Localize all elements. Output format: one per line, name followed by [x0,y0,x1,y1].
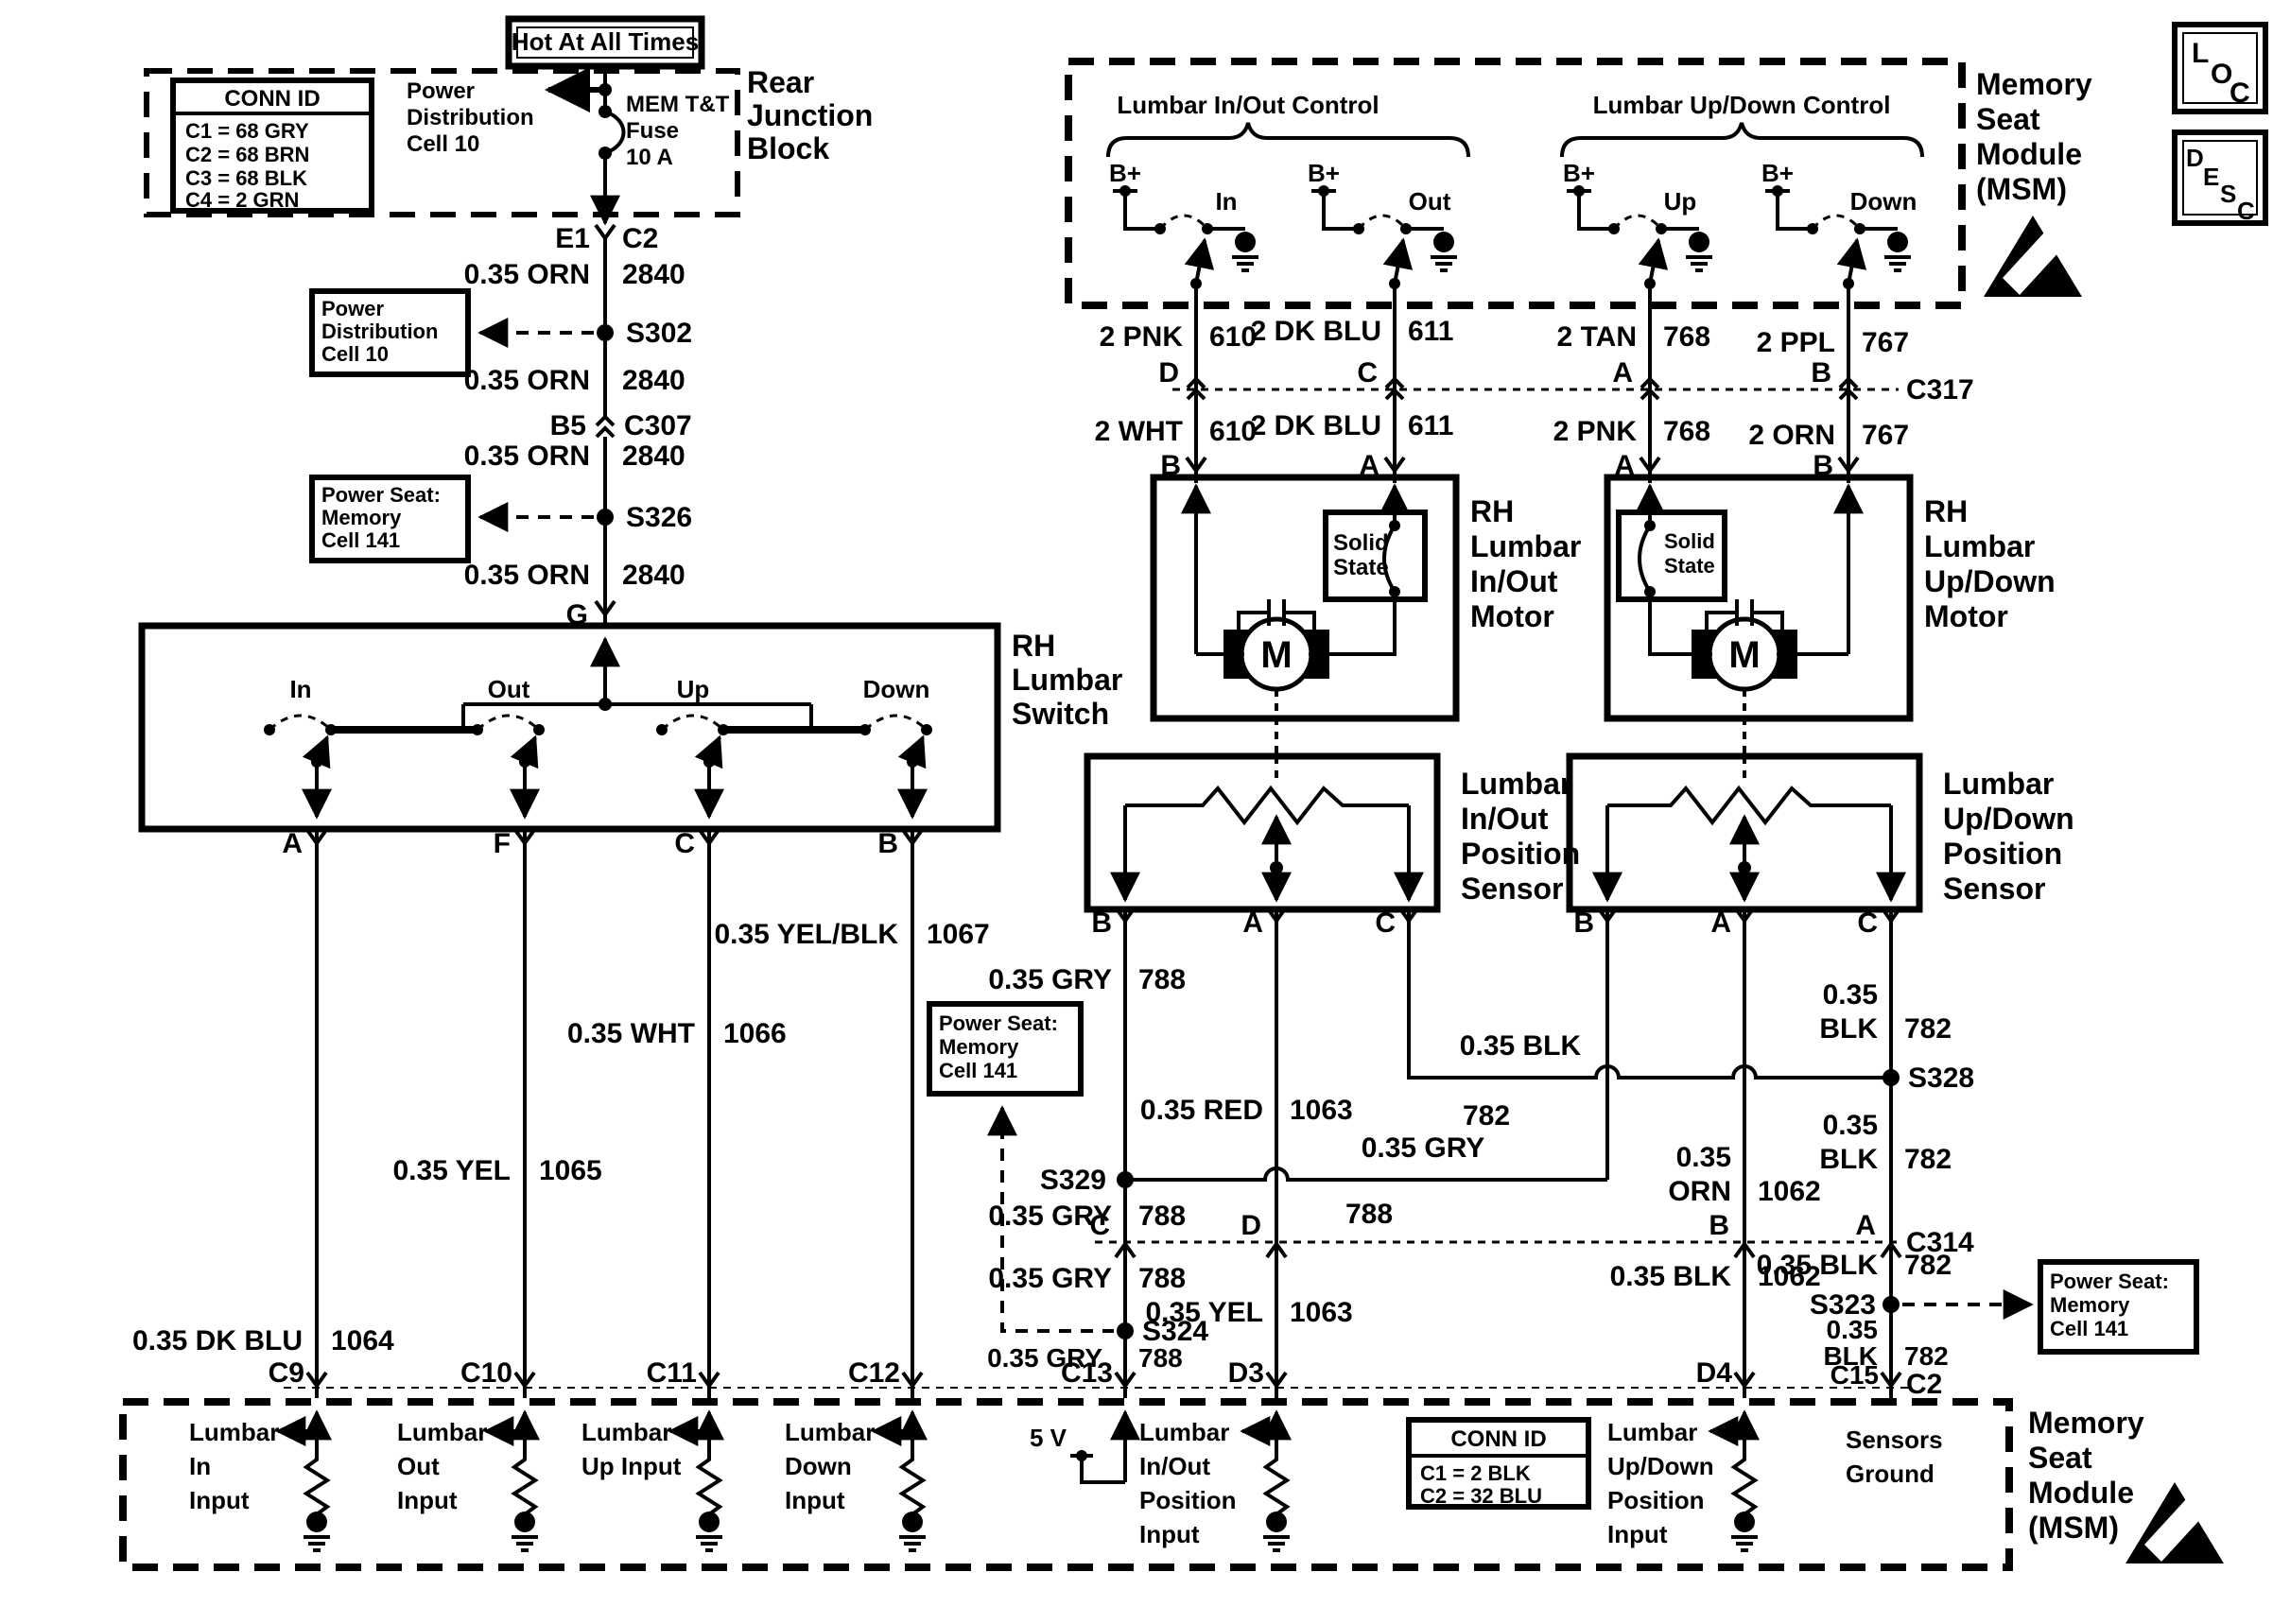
wire-circuit: 767 [1862,420,1909,451]
wire-label: 2 TAN [1557,321,1637,353]
conn-id-row: C4 = 2 GRN [185,188,299,212]
input-label-line: Ground [1846,1460,1935,1488]
motor-title-line: RH [1924,494,1968,528]
switch-position-label: In [289,675,311,703]
msm-title-line: Module [1976,137,2082,171]
wire-circuit: 767 [1862,327,1909,358]
lumbar-inout-position-sensor: Lumbar In/Out Position Sensor B A C [1087,756,1580,939]
wire-label: 0.35 ORN [464,259,590,290]
sensor-title-line: Position [1461,837,1580,871]
control-position-label: Out [1409,187,1451,216]
five-v-label: 5 V [1030,1424,1067,1452]
input-label-line: Lumbar [397,1418,487,1446]
msm-title-line: Module [2028,1476,2134,1510]
input-label-line: Input [785,1486,845,1514]
hot-label: Hot At All Times [512,27,699,56]
wire-label: 0.35 WHT [567,1018,695,1049]
group-label: Lumbar In/Out Control [1117,91,1379,119]
switch-pin-label: A [282,828,303,859]
msm-title-line: Seat [2028,1441,2092,1475]
wire-label: 0.35 YEL [392,1155,511,1186]
mem-tt-fuse: MEM T&T Fuse 10 A [599,92,730,170]
connector-label: C2 [622,223,658,254]
brace [1108,123,1468,157]
splice-s326: S326 Power Seat: Memory Cell 141 [312,477,692,561]
conn-id-row: C1 = 2 BLK [1420,1461,1531,1485]
sensor-pin-label: A [1242,907,1263,939]
switch-title-line: Lumbar [1012,663,1122,697]
splice-label: S328 [1908,1063,1974,1094]
fuse-line: Fuse [626,118,679,144]
wire-label: 2 DK BLU [1251,316,1381,347]
pin-label: C [1357,357,1378,389]
pd-ref-line: Distribution [407,105,534,130]
switch-pole-up[interactable]: Up [656,675,729,817]
lumbar-up-input: Lumbar Up Input [581,1412,722,1550]
sensor-pin-label: C [1857,907,1878,939]
memory-seat-module-top: Memory Seat Module (MSM) Lumbar In/Out C… [1068,61,2092,305]
sensor-title-line: Up/Down [1943,802,2074,836]
conn-id-header: CONN ID [1450,1426,1546,1452]
switch-pin-label: B [877,828,898,859]
sensor-pin-label: B [1091,907,1112,939]
switch-pole-down[interactable]: Down [859,675,932,817]
wire-label: 2 PPL [1757,327,1835,358]
lumbar-updown-position-sensor: Lumbar Up/Down Position Sensor B A C [1570,756,2074,939]
pd-ref-line: Power [407,78,475,104]
switch-pin-label: C [674,828,695,859]
input-label-line: Lumbar [785,1418,875,1446]
wire-label: 0.35 GRY [1362,1132,1485,1164]
ps-box-line: Memory [321,506,402,529]
b-plus-label: B+ [1761,159,1794,187]
control-position-label: In [1215,187,1237,216]
desc-letter: C [2237,197,2255,225]
wire-circuit: 788 [1138,1201,1186,1232]
pin-label: C13 [1061,1357,1113,1389]
solid-state-line: State [1333,555,1389,580]
pin-label: D4 [1696,1357,1733,1389]
pin-label: A [1612,357,1633,389]
desc-letter: D [2186,144,2204,172]
control-switch-up: B+ Up [1563,159,1712,289]
motor-feed-wires: 2 PNK 610 2 DK BLU 611 2 TAN 768 2 PPL 7… [1095,284,1974,483]
pin-label: D [1241,1210,1261,1241]
motor-title-line: RH [1470,494,1514,528]
wire-label: 0.35 [1823,979,1878,1011]
input-label-line: Lumbar [189,1418,279,1446]
conn-id-row: C2 = 68 BRN [185,143,309,166]
input-label-line: Position [1139,1486,1237,1514]
switch-position-label: Out [488,675,530,703]
msm-connector-row: C9 C10 C11 C12 C13 D3 D4 C15 C2 [269,1357,1943,1400]
loc-letter: C [2230,78,2250,109]
wire-circuit: 782 [1904,1013,1952,1045]
pd-box-line: Distribution [321,320,438,343]
motor-m: M [1260,634,1292,676]
solid-state-switch: Solid State [1619,486,1725,599]
wire-label: 0.35 [1823,1110,1878,1141]
wire-label: 0.35 ORN [464,365,590,396]
switch-title-line: Switch [1012,697,1109,731]
pin-label: B5 [550,410,586,441]
b-plus-label: B+ [1563,159,1595,187]
wire-circuit: 1062 [1758,1176,1821,1207]
rear-junction-block: Rear Junction Block CONN ID C1 = 68 GRY … [147,65,873,215]
pd-ref-line: Cell 10 [407,131,479,157]
sensor-title-line: In/Out [1461,802,1549,836]
motor-symbol: M [1692,599,1797,689]
sensors-ground-label: Sensors Ground [1846,1425,1943,1488]
pd-box-line: Power [321,297,384,320]
hot-at-all-times-callout: Hot At All Times [509,19,702,66]
wire-label: 2 WHT [1095,416,1183,447]
memory-seat-module-bottom: Memory Seat Module (MSM) Lumbar In Input… [123,1402,2224,1567]
pin-label: C [1089,1210,1110,1241]
wire-circuit: 788 [1345,1199,1393,1230]
pin-label: C11 [647,1357,697,1389]
wire-circuit: 1066 [723,1018,787,1049]
wire-circuit: 611 [1408,316,1453,347]
wire-circuit: 2840 [622,441,685,472]
wire-circuit: 610 [1209,416,1257,447]
wire-label: 0.35 BLK [1460,1030,1582,1062]
motor-title-line: In/Out [1470,564,1558,598]
esd-warning-icon [1984,216,2082,297]
wire-circuit: 1063 [1290,1297,1353,1328]
control-position-label: Down [1850,187,1917,216]
motor-title-line: Motor [1470,599,1554,633]
wire-label: 0.35 GRY [988,964,1112,995]
pin-label: C15 [1831,1360,1879,1390]
rh-lumbar-inout-motor: RH Lumbar In/Out Motor Solid State M [1154,477,1581,756]
splice-s329: S329 [1040,1165,1134,1196]
conn-id-table-rjb: CONN ID C1 = 68 GRY C2 = 68 BRN C3 = 68 … [173,80,372,212]
wire-circuit: 782 [1463,1100,1510,1132]
rh-lumbar-switch: RH Lumbar Switch In Out Up Dow [142,626,1122,859]
wire-label: 2 ORN [1748,420,1835,451]
input-label-line: Lumbar [581,1418,671,1446]
control-position-label: Up [1664,187,1697,216]
motor-title-line: Motor [1924,599,2008,633]
ps-box-line: Memory [939,1035,1019,1059]
ps-box-line: Power Seat: [2050,1270,2169,1293]
fuse-line: 10 A [626,145,673,170]
sensor-pin-label: B [1573,907,1594,939]
msm-title-line: (MSM) [1976,172,2067,206]
conn-id-table-msm: CONN ID C1 = 2 BLK C2 = 32 BLU [1409,1420,1588,1508]
sensor-pin-label: A [1710,907,1731,939]
lumbar-inout-position-input: Lumbar In/Out Position Input [1139,1412,1290,1550]
wire-circuit: 788 [1138,1263,1186,1294]
input-label-line: Input [189,1486,250,1514]
wire-label: 0.35 [1676,1142,1731,1173]
solid-state-line: Solid [1333,530,1389,556]
wiring-diagram-page: L O C D E S C Hot At All Times Rear Junc… [0,0,2273,1624]
b-plus-label: B+ [1308,159,1340,187]
input-label-line: Input [397,1486,458,1514]
msm-title-line: Memory [1976,67,2092,101]
motor-title-line: Lumbar [1924,529,2035,563]
wire-circuit: 782 [1904,1341,1949,1371]
control-switch-out: B+ Out [1308,159,1457,289]
pin-label: C10 [460,1357,512,1389]
conn-id-row: C3 = 68 BLK [185,166,307,190]
wire-label: 0.35 ORN [464,441,590,472]
wire-circuit: 2840 [622,560,685,591]
switch-title-line: RH [1012,629,1055,663]
solid-state-line: Solid [1664,529,1715,553]
ps-box-line: Cell 141 [321,528,400,552]
input-label-line: Input [1139,1520,1200,1548]
desc-letter: E [2203,163,2219,191]
switch-pole-out[interactable]: Out [472,675,545,817]
pin-label: E1 [555,223,590,254]
fuse-line: MEM T&T [626,92,730,117]
splice-label: S329 [1040,1165,1106,1196]
desc-button[interactable]: D E S C [2175,132,2265,225]
wire-label: BLK [1819,1013,1878,1045]
solid-state-line: State [1664,554,1715,578]
wire-circuit: 1063 [1290,1095,1353,1126]
msm-title-line: (MSM) [2028,1511,2119,1545]
desc-letter: S [2220,180,2236,208]
wire-label: 2 DK BLU [1251,410,1381,441]
lumbar-out-input: Lumbar Out Input [397,1412,538,1550]
input-label-line: Out [397,1452,440,1480]
loc-letter: L [2192,38,2209,69]
wire-circuit: 782 [1904,1144,1952,1175]
input-label-line: Up/Down [1607,1452,1714,1480]
group-label: Lumbar Up/Down Control [1593,91,1891,119]
sensor-title-line: Sensor [1461,872,1563,906]
splice-label: S302 [626,318,692,349]
lumbar-updown-position-input: Lumbar Up/Down Position Input [1607,1412,1758,1550]
brace [1562,123,1922,157]
wire-label: 0.35 RED [1140,1095,1263,1126]
rjb-title-line: Block [747,131,829,165]
wire-circuit: 1067 [927,919,990,950]
motor-m: M [1728,634,1760,676]
input-label-line: In [189,1452,211,1480]
connector-label: C307 [624,410,692,441]
b-plus-label: B+ [1109,159,1141,187]
wire-label: 2 PNK [1100,321,1184,353]
wire-circuit: 1065 [539,1155,602,1186]
motor-title-line: Lumbar [1470,529,1581,563]
connector-label: C317 [1906,374,1974,406]
input-label-line: Sensors [1846,1425,1943,1454]
power-distribution-ref: Power Distribution Cell 10 [407,78,612,157]
power-seat-memory-callout-right: Power Seat: Memory Cell 141 [2040,1262,2196,1352]
wire-circuit: 611 [1408,410,1453,441]
pin-label: D [1158,357,1179,389]
conn-id-row: C1 = 68 GRY [185,119,309,143]
switch-pole-in[interactable]: In [264,675,337,817]
wire-label: 0.35 BLK [1610,1261,1732,1292]
sensor-pin-label: C [1375,907,1396,939]
pin-label: B [1709,1210,1729,1241]
wire-circuit: 788 [1138,964,1186,995]
rjb-title-line: Rear [747,65,814,99]
control-switch-down: B+ Down [1761,159,1917,289]
conn-id-row: C2 = 32 BLU [1420,1484,1542,1508]
wire-circuit: 768 [1663,321,1710,353]
pd-box-line: Cell 10 [321,342,389,366]
wire-label: BLK [1819,1144,1878,1175]
sensor-title-line: Sensor [1943,872,2045,906]
wire-circuit: 2840 [622,259,685,290]
input-label-line: Lumbar [1607,1418,1697,1446]
switch-position-label: Up [677,675,710,703]
wire-label: 0.35 YEL/BLK [714,919,898,950]
sensor-title-line: Lumbar [1461,767,1571,801]
motor-title-line: Up/Down [1924,564,2056,598]
input-label-line: In/Out [1139,1452,1210,1480]
wire-label: 0.35 BLK [1757,1250,1879,1281]
sensor-title-line: Lumbar [1943,767,2054,801]
input-label-line: Position [1607,1486,1705,1514]
input-label-line: Input [1607,1520,1668,1548]
splice-label: S326 [626,502,692,533]
wire-circuit: 788 [1138,1343,1183,1373]
solid-state-switch: Solid State [1326,486,1425,599]
wire-label: 2 PNK [1553,416,1638,447]
rjb-title-line: Junction [747,98,873,132]
msm-title-line: Memory [2028,1406,2144,1440]
wire-label: ORN [1668,1176,1731,1207]
sensor-title-line: Position [1943,837,2062,871]
five-volt-supply: 5 V [1030,1412,1125,1482]
esd-warning-icon [2126,1482,2224,1564]
wire-label: 0.35 DK BLU [132,1325,303,1356]
pin-label: C9 [269,1357,304,1389]
pin-label: A [1855,1210,1876,1241]
input-label-line: Up Input [581,1452,682,1480]
wire-circuit: 1064 [331,1325,394,1356]
control-switch-in: B+ In [1109,159,1258,289]
switch-output-wires: 0.35 YEL/BLK 1067 0.35 WHT 1066 0.35 YEL… [132,829,990,1388]
ps-box-line: Cell 141 [2050,1317,2128,1340]
ps-box-line: Power Seat: [939,1011,1058,1035]
wire-label: 0.35 ORN [464,560,590,591]
ps-box-line: Cell 141 [939,1059,1017,1082]
msm-title-line: Seat [1976,102,2040,136]
switch-internal-wiring [331,639,865,730]
switch-pin-label: F [494,828,511,859]
motor-symbol: M [1223,599,1329,689]
wire-circuit: 610 [1209,321,1257,353]
c317-connector: D C A B C317 [1158,357,1973,406]
wire-circuit: 782 [1904,1250,1952,1281]
input-label-line: Down [785,1452,852,1480]
pin-label: B [1811,357,1831,389]
conn-id-header: CONN ID [224,86,320,112]
input-label-line: Lumbar [1139,1418,1229,1446]
wire-circuit: 768 [1663,416,1710,447]
splice-s302: S302 Power Distribution Cell 10 [312,291,692,374]
ps-box-line: Power Seat: [321,483,441,507]
wire-label: 0.35 [1827,1315,1879,1344]
rh-lumbar-updown-motor: RH Lumbar Up/Down Motor Solid State M [1607,477,2056,756]
wire-circuit: 2840 [622,365,685,396]
pin-label: D3 [1228,1357,1264,1389]
splice-s328: S328 [1883,1063,1974,1094]
loc-button[interactable]: L O C [2175,25,2265,112]
pin-label: C12 [848,1357,900,1389]
lumbar-down-input: Lumbar Down Input [785,1412,926,1550]
lumbar-in-input: Lumbar In Input [189,1412,330,1550]
ps-box-line: Memory [2050,1293,2130,1317]
wire-label: 0.35 GRY [988,1263,1112,1294]
switch-position-label: Down [863,675,930,703]
sensor-harness-wiring: 0.35 GRY 788 0.35 RED 1063 0.35 BLK 782 … [929,909,2196,1388]
connector-label: C2 [1906,1369,1942,1400]
